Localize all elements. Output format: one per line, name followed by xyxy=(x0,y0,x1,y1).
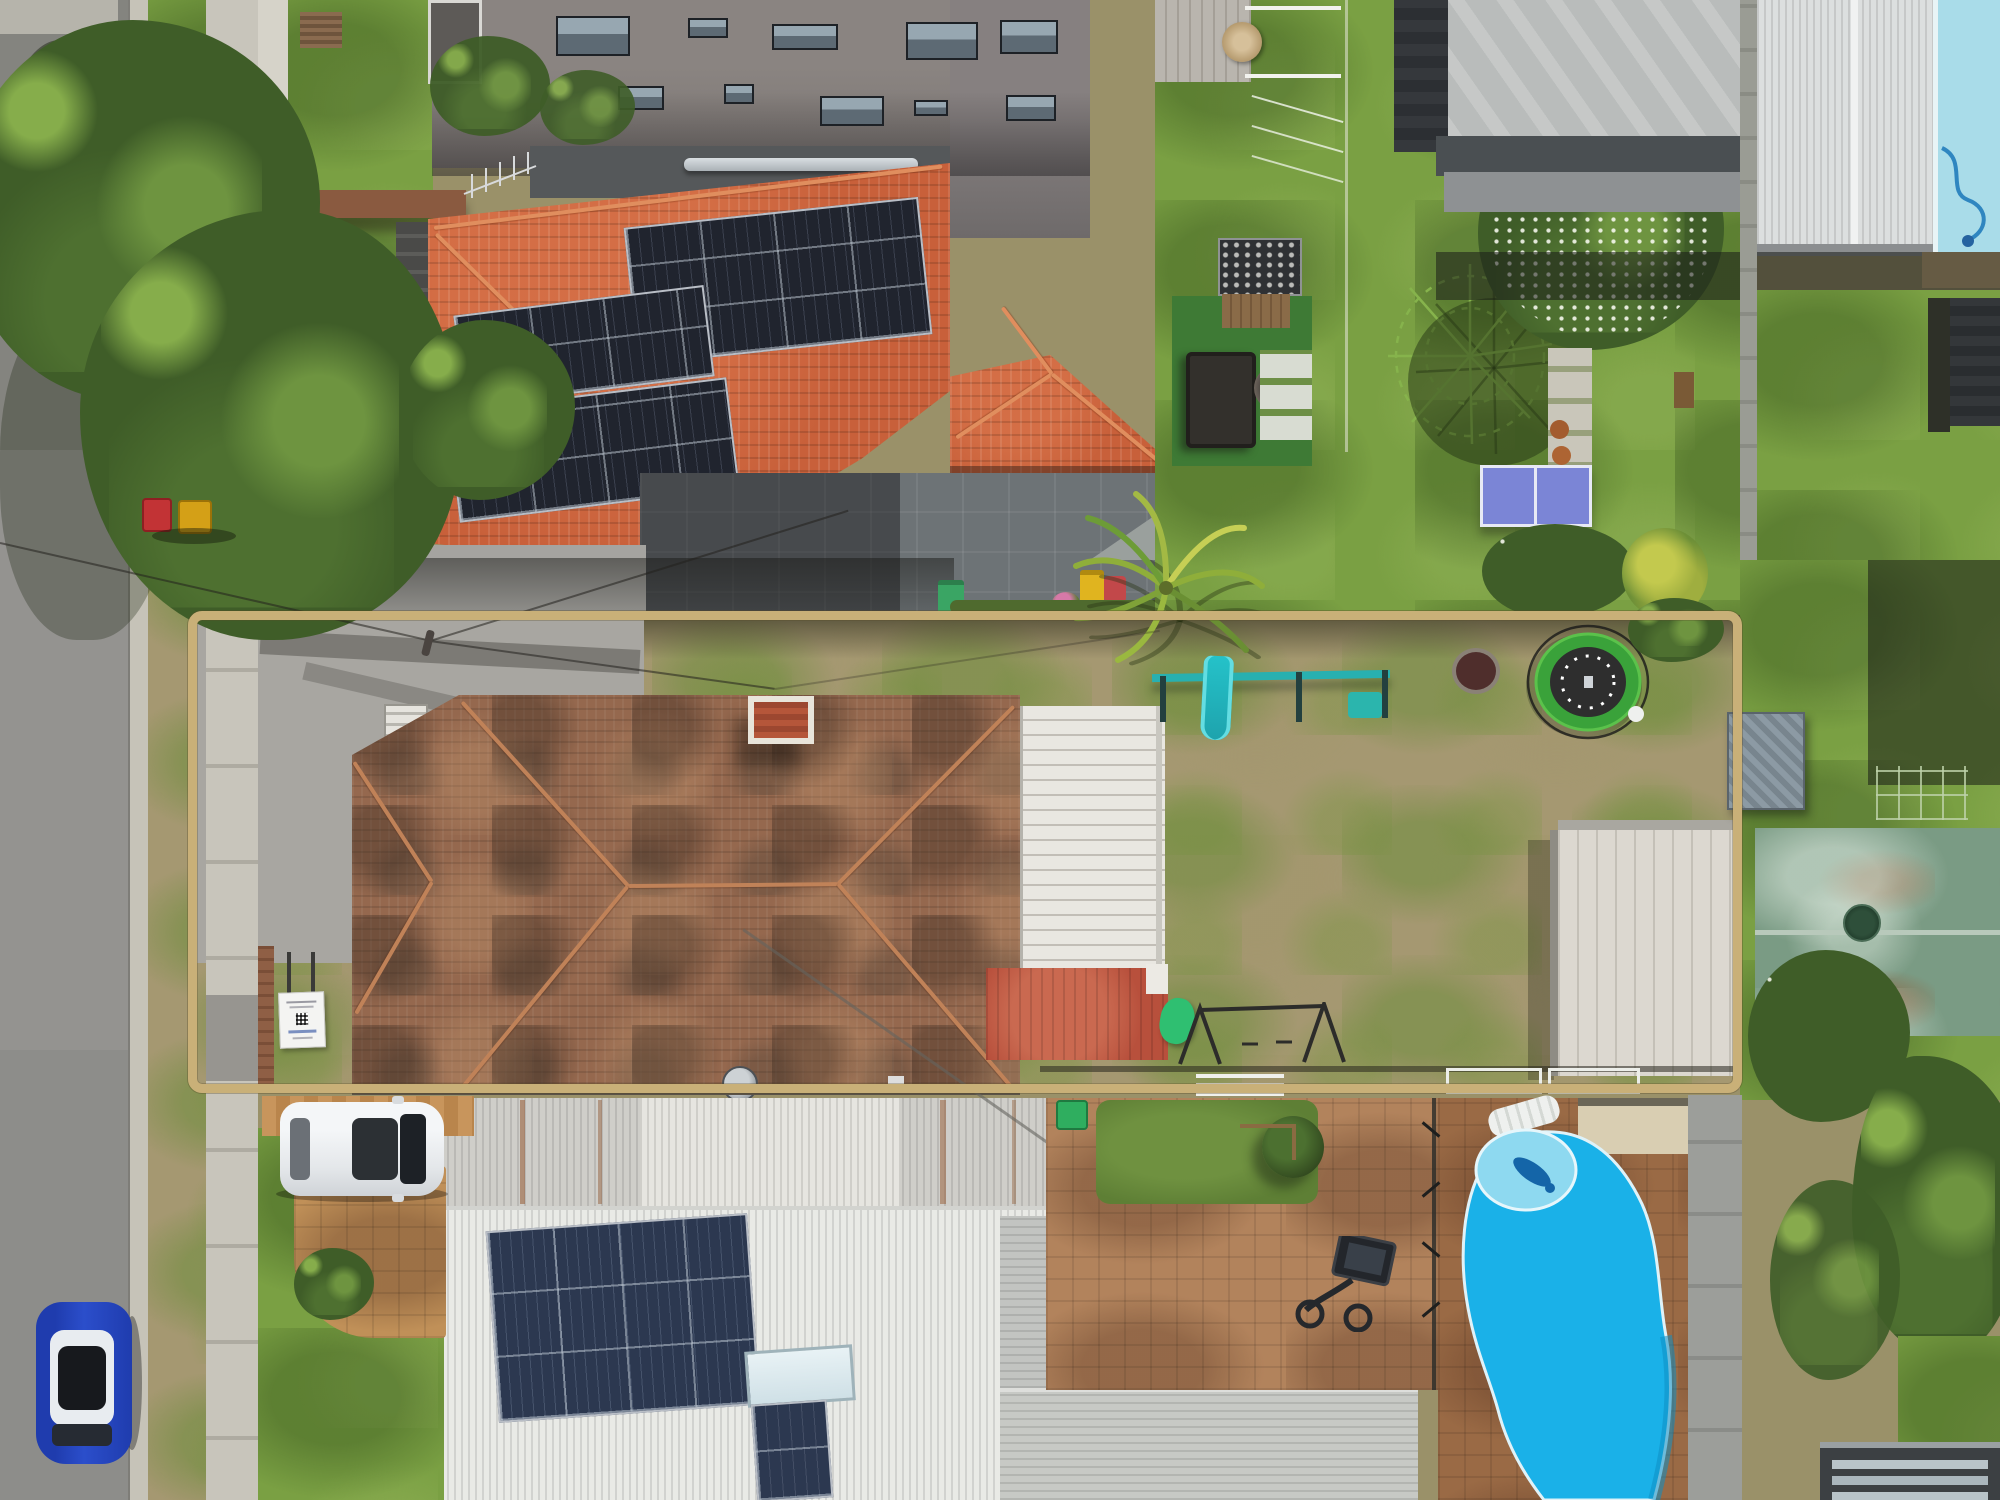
apartment-window xyxy=(688,18,728,38)
skylight-strip xyxy=(1832,1492,1988,1500)
dark-roof-with-skylights xyxy=(1820,1442,2000,1500)
white-car xyxy=(280,1102,444,1196)
blue-car xyxy=(36,1302,132,1464)
apartment-window xyxy=(906,22,978,60)
outdoor-dining-set xyxy=(1186,352,1256,448)
skylight-strip xyxy=(1832,1476,1988,1485)
large-trees-bottom-right xyxy=(1770,1180,1900,1380)
side-fence-band xyxy=(1740,0,1757,620)
solar-array-bottom2 xyxy=(751,1399,834,1500)
car-windshield-band xyxy=(52,1424,112,1446)
roof-vent-pipe xyxy=(684,158,918,171)
pool-fence-line xyxy=(1432,1098,1436,1390)
apartment-window xyxy=(772,24,838,50)
skylight-strip xyxy=(1832,1460,1988,1469)
parapet-shadow-band xyxy=(1436,136,1756,176)
roof-skylight xyxy=(744,1344,856,1407)
car-rear-glass xyxy=(290,1118,310,1180)
large-grey-roof xyxy=(1000,1388,1418,1500)
apartment-window xyxy=(724,84,754,104)
car-sunroof xyxy=(58,1346,106,1410)
gazebo-deck xyxy=(1222,294,1290,328)
corrugated-ridge xyxy=(1851,0,1858,248)
dark-pitched-roof xyxy=(1394,0,1452,152)
property-boundary-outline xyxy=(188,611,1742,1093)
apartment-window xyxy=(1000,20,1058,54)
balustrade xyxy=(1245,74,1341,78)
swimming-pool xyxy=(1446,1104,1678,1500)
garden-grate xyxy=(300,12,342,48)
green-bin-bottom xyxy=(1056,1100,1088,1130)
car-roof-panel xyxy=(352,1118,398,1180)
aerial-photo xyxy=(0,0,2000,1500)
roof-whirlybird-vent xyxy=(1843,904,1881,942)
rust-streak xyxy=(598,1100,602,1204)
ping-pong-net-line xyxy=(1534,465,1537,527)
building-wall-strip xyxy=(1444,172,1756,212)
timber-garden-edge xyxy=(1240,1124,1296,1128)
gazebo-shade-roof xyxy=(1218,238,1302,296)
lawn-gap-bottom-right xyxy=(1898,1336,2000,1448)
solar-array-bottom xyxy=(486,1213,761,1423)
terracotta-pot xyxy=(1552,446,1571,465)
building-shadow-right xyxy=(1868,560,2000,785)
white-corrugated-building xyxy=(1757,0,1935,256)
timber-garden-edge xyxy=(1292,1124,1296,1160)
patio-umbrella xyxy=(1222,22,1262,62)
terracotta-pot xyxy=(1550,420,1569,439)
orange-roof-rear-wing xyxy=(950,355,1168,475)
apartment-window xyxy=(1006,95,1056,121)
garden-bench xyxy=(1674,372,1694,408)
grey-flat-roof-building xyxy=(1448,0,1756,140)
apartment-window xyxy=(556,16,630,56)
pool-hose xyxy=(1938,140,2000,250)
dark-fence xyxy=(1928,298,1950,432)
tv-antenna-icon xyxy=(458,148,542,202)
side-path-right xyxy=(1688,1095,1742,1500)
stepping-pavers xyxy=(1260,350,1312,440)
red-bin xyxy=(142,498,172,532)
old-corrugated-bright-panel xyxy=(640,1098,900,1208)
bin-shadow xyxy=(152,528,236,544)
dark-tile-roof xyxy=(1950,298,2000,426)
car-windshield xyxy=(400,1114,426,1184)
garden-trellis xyxy=(1876,766,1968,820)
basketball-hoop-unit xyxy=(1292,1236,1402,1332)
car-mirror xyxy=(392,1194,404,1202)
apartment-window xyxy=(914,100,948,116)
apartment-window xyxy=(820,96,884,126)
boundary-fence-line xyxy=(1345,0,1348,452)
car-mirror xyxy=(392,1096,404,1104)
rust-streak xyxy=(940,1100,946,1204)
rust-streak xyxy=(520,1100,525,1204)
balustrade xyxy=(1245,6,1341,10)
